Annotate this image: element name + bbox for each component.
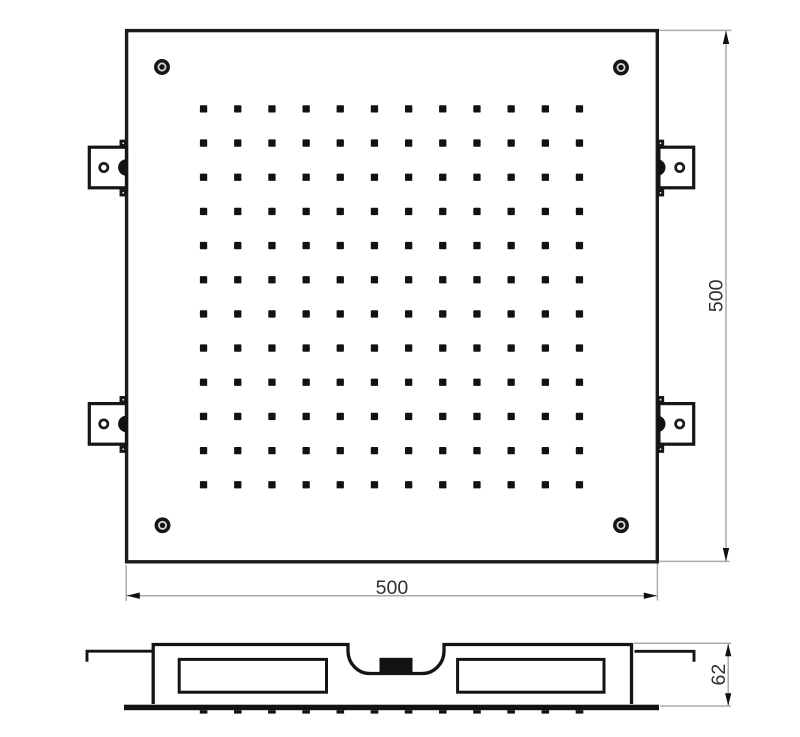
- svg-text:500: 500: [376, 577, 409, 599]
- svg-text:500: 500: [705, 279, 727, 312]
- svg-text:62: 62: [708, 664, 730, 686]
